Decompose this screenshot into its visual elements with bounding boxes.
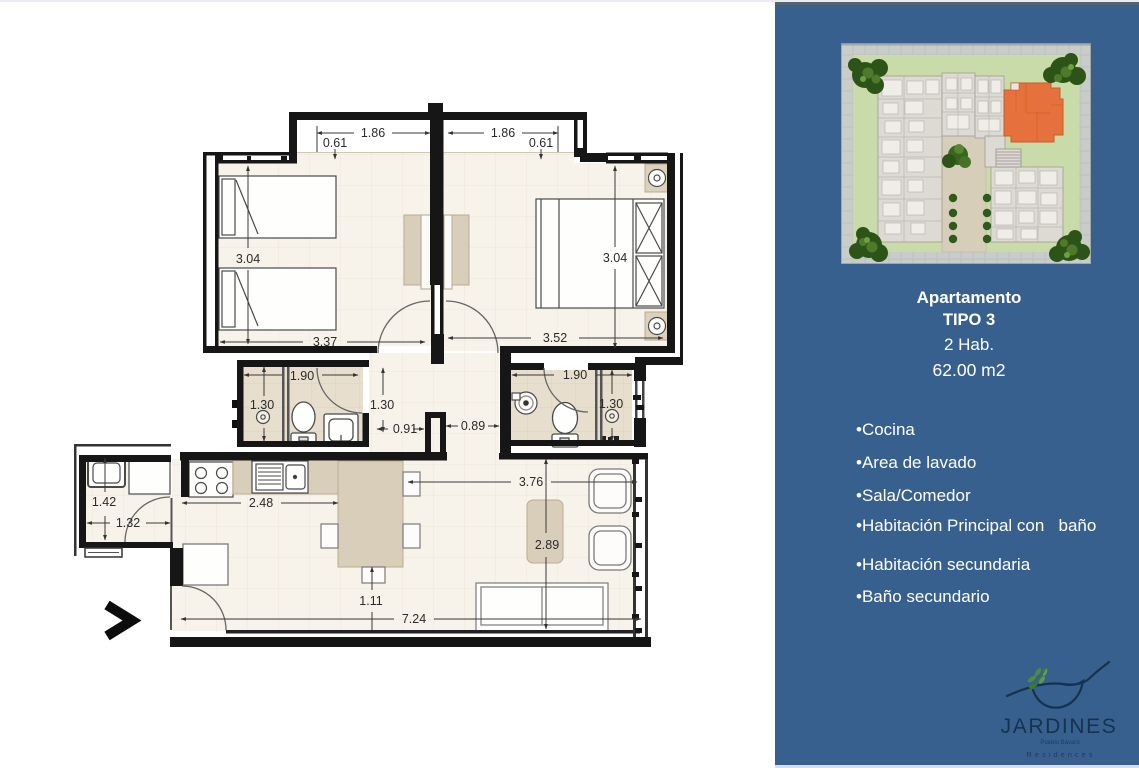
svg-text:1.11: 1.11 bbox=[359, 594, 382, 608]
svg-text:1.32: 1.32 bbox=[116, 516, 140, 530]
svg-text:3.37: 3.37 bbox=[313, 335, 337, 349]
svg-text:2.89: 2.89 bbox=[535, 538, 559, 552]
svg-text:1.90: 1.90 bbox=[290, 369, 314, 383]
svg-text:0.89: 0.89 bbox=[461, 419, 485, 433]
svg-text:3.04: 3.04 bbox=[236, 252, 260, 266]
svg-text:1.90: 1.90 bbox=[563, 368, 587, 382]
svg-text:0.91: 0.91 bbox=[393, 422, 417, 436]
svg-text:3.76: 3.76 bbox=[519, 475, 543, 489]
svg-text:1.86: 1.86 bbox=[361, 126, 385, 140]
svg-text:3.52: 3.52 bbox=[543, 331, 567, 345]
svg-text:0.61: 0.61 bbox=[323, 136, 347, 150]
svg-text:1.42: 1.42 bbox=[92, 495, 116, 509]
svg-text:1.30: 1.30 bbox=[250, 398, 274, 412]
svg-text:0.61: 0.61 bbox=[529, 136, 553, 150]
svg-text:2.48: 2.48 bbox=[249, 496, 273, 510]
svg-text:1.30: 1.30 bbox=[599, 397, 623, 411]
svg-text:1.30: 1.30 bbox=[370, 398, 394, 412]
svg-text:7.24: 7.24 bbox=[402, 612, 426, 626]
svg-text:3.04: 3.04 bbox=[603, 251, 627, 265]
svg-text:1.86: 1.86 bbox=[491, 126, 515, 140]
